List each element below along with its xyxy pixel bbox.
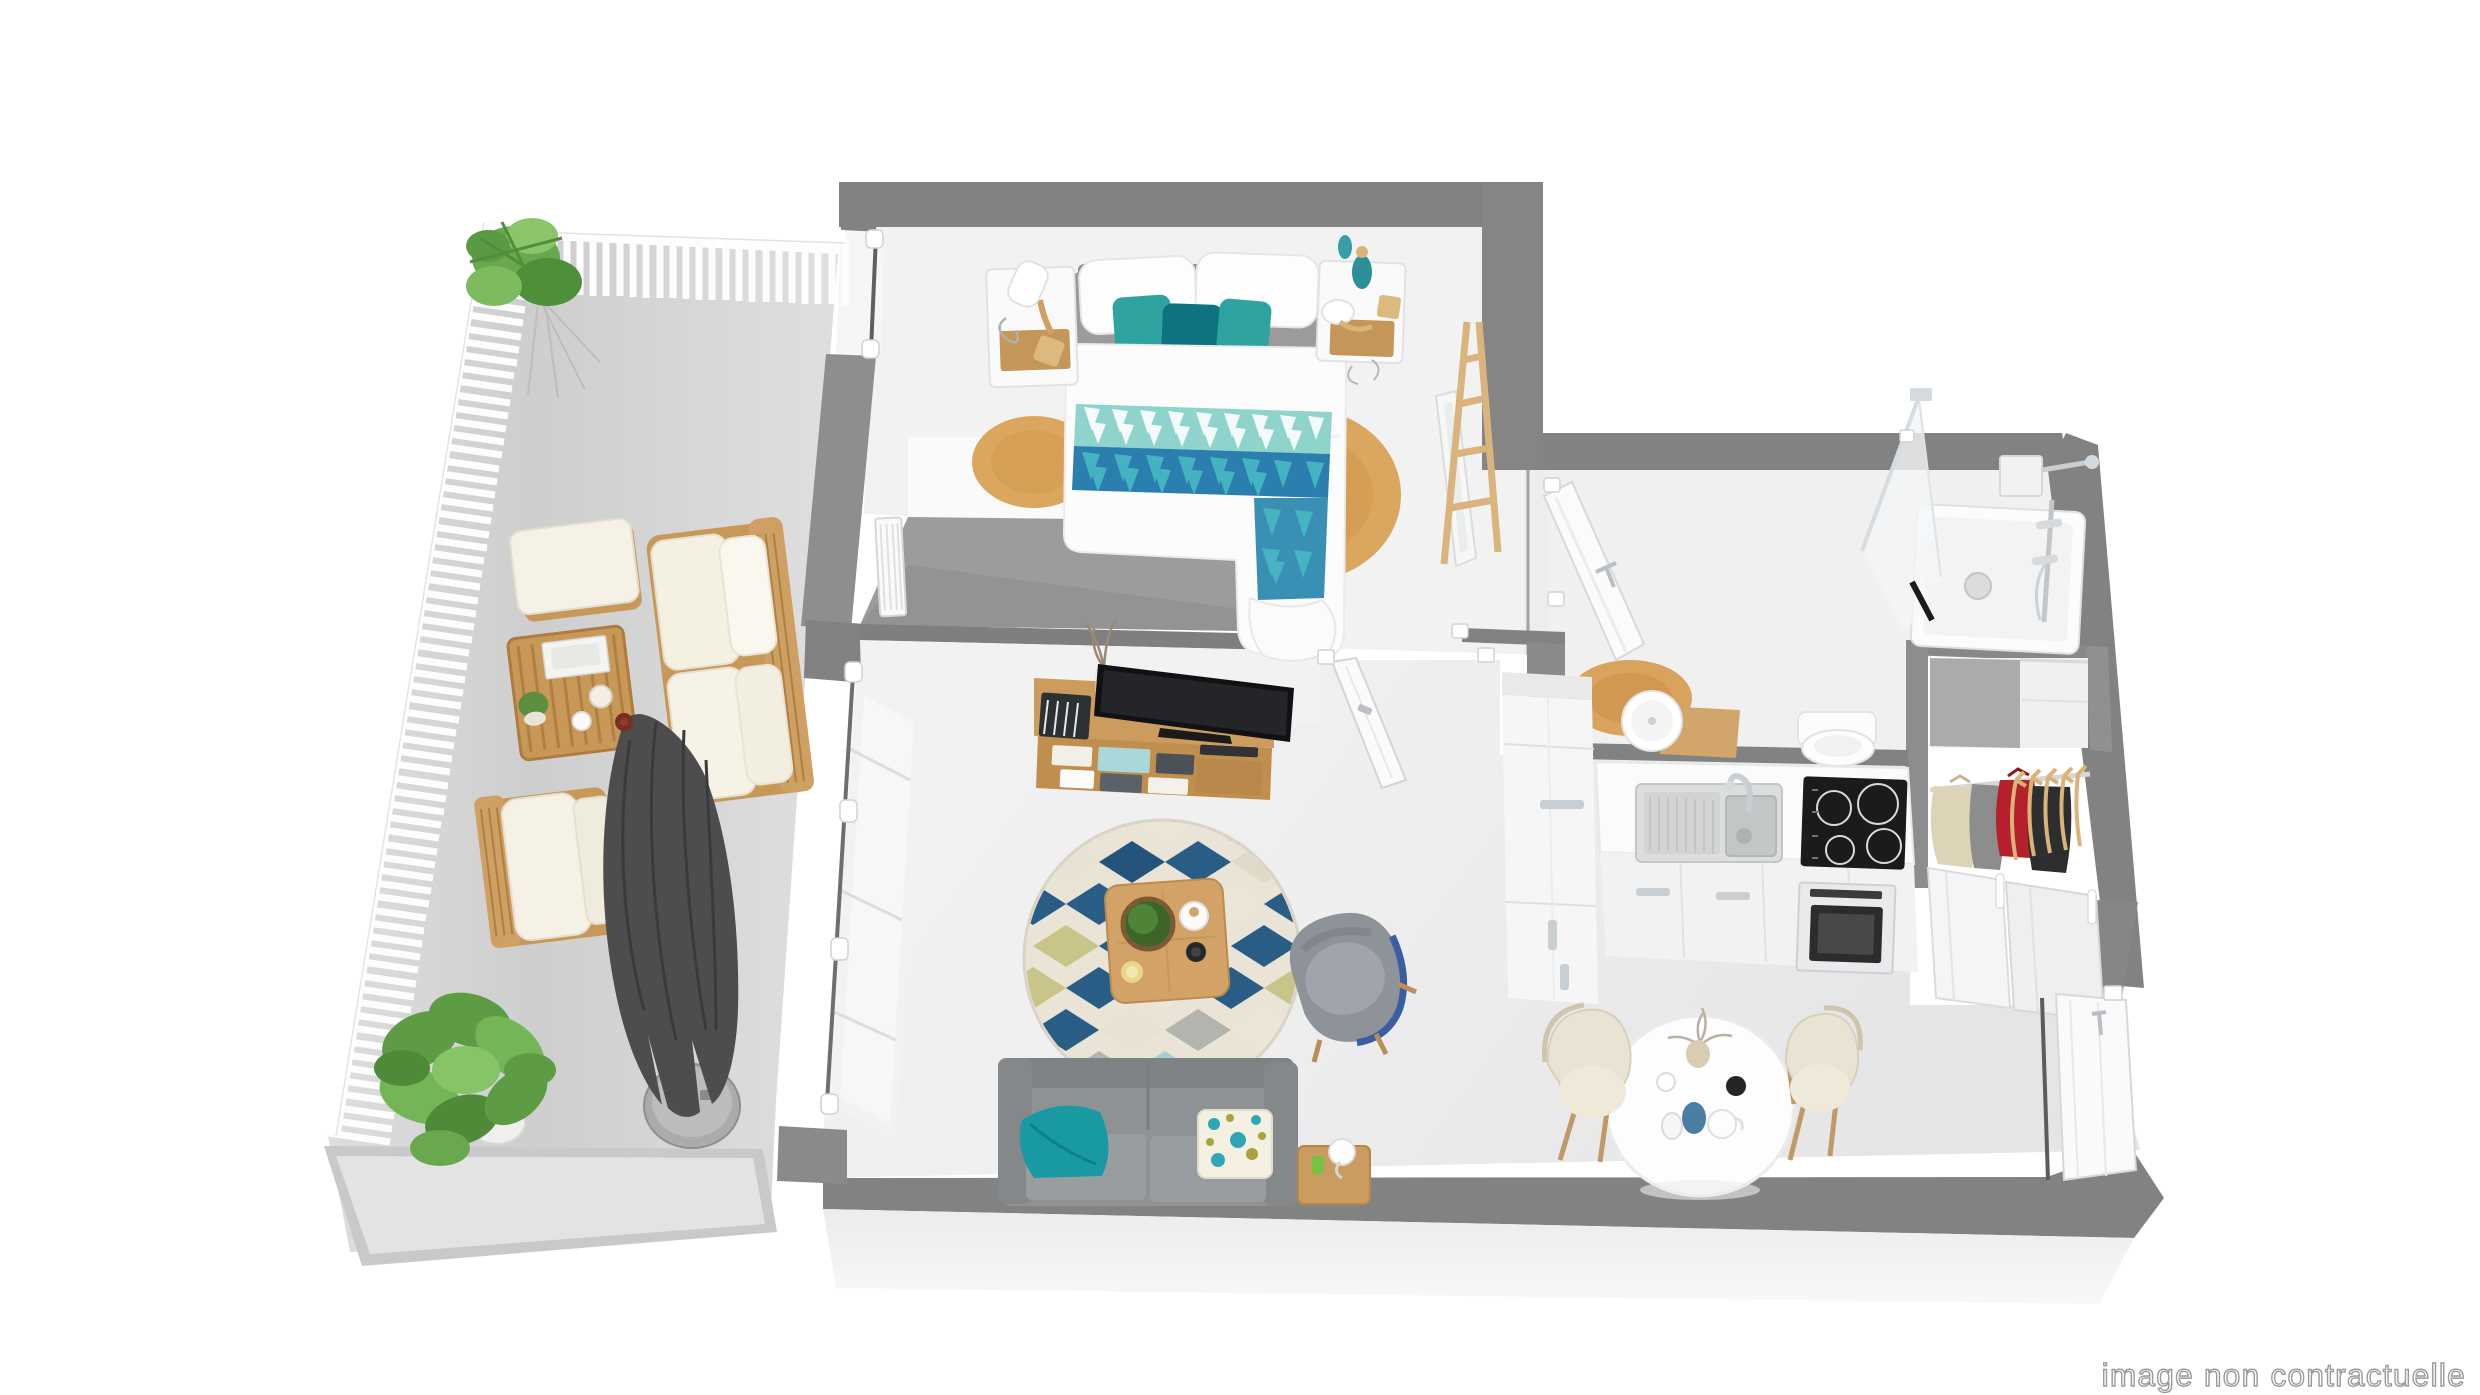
svg-text:image non contractuelle: image non contractuelle: [2102, 1357, 2466, 1393]
